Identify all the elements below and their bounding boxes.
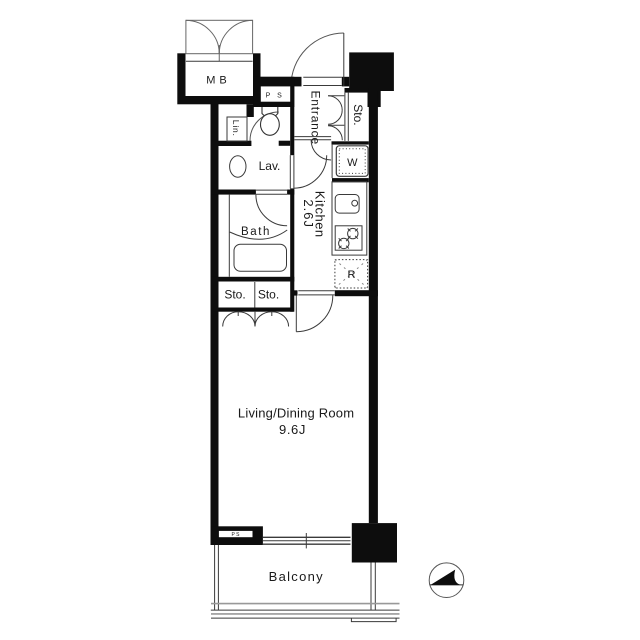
svg-text:W: W xyxy=(347,157,358,169)
svg-text:2.6J: 2.6J xyxy=(301,199,316,228)
svg-text:P S: P S xyxy=(266,92,285,99)
svg-text:Bath: Bath xyxy=(241,226,271,238)
svg-text:Sto.: Sto. xyxy=(224,288,245,302)
svg-text:MB: MB xyxy=(206,75,231,87)
svg-text:Living/Dining Room: Living/Dining Room xyxy=(238,406,354,421)
svg-text:P S: P S xyxy=(232,532,241,538)
svg-text:Lav.: Lav. xyxy=(259,159,281,173)
svg-text:Sto.: Sto. xyxy=(258,288,279,302)
svg-text:R: R xyxy=(348,269,356,281)
svg-text:Sto.: Sto. xyxy=(351,104,365,125)
svg-text:Balcony: Balcony xyxy=(269,569,324,584)
svg-text:Entrance: Entrance xyxy=(308,91,322,145)
svg-text:Lin.: Lin. xyxy=(231,120,241,137)
svg-text:9.6J: 9.6J xyxy=(279,422,306,437)
